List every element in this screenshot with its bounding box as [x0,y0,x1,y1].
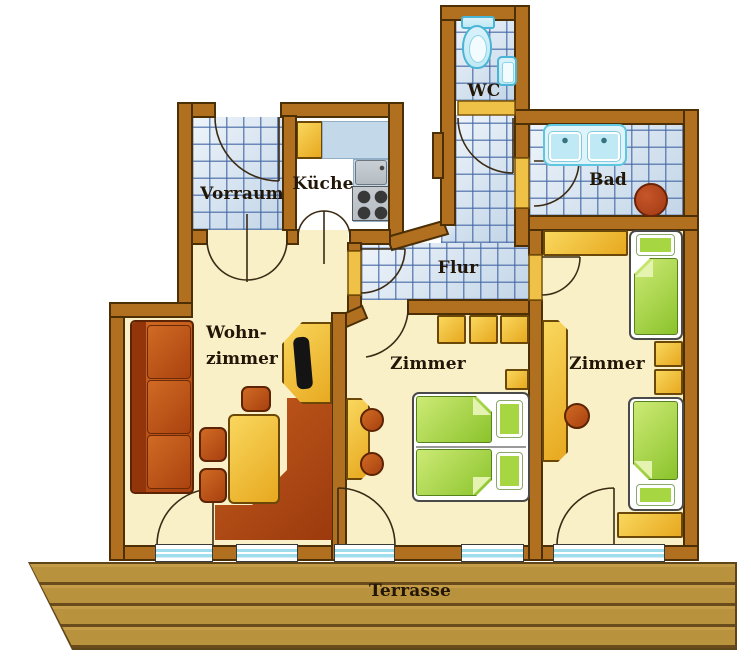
window [236,544,298,562]
room-label-wohnzimmer: Wohn- zimmer [206,320,278,372]
room-label-zimmer-mitte: Zimmer [390,354,466,374]
threshold-wc [458,101,515,115]
window [461,544,524,562]
window [334,544,395,562]
desk [542,320,568,462]
room-label-zimmer-rechts: Zimmer [569,354,645,374]
room-label-bad: Bad [589,170,627,190]
floor-plan: Vorraum Küche WC Bad Flur Wohn- zimmer Z… [0,0,751,660]
washbasin-left [549,132,581,161]
washbasin-right [588,132,620,161]
sofa-backrest [132,322,146,492]
wc-door [458,118,513,173]
toilet-bowl [469,35,487,63]
wardrobe [543,230,628,256]
zimmer-rechts-balcony-door [557,488,614,545]
room-label-kueche: Küche [292,174,353,194]
terrace-planks [30,564,735,648]
nightstand [505,369,529,390]
zimmer-rechts-door [542,257,580,295]
dining-chair-west-2 [199,468,227,503]
bed-mattress [416,449,492,496]
wardrobe-segment [469,315,498,344]
sofa-cushion [147,380,191,434]
dining-chair-north [241,386,271,412]
room-label-terrasse: Terrasse [369,581,451,601]
bed-mattress [633,401,678,480]
room-label-flur: Flur [438,258,479,278]
room-label-vorraum: Vorraum [200,184,284,204]
room-label-wohnzimmer-line1: Wohn- [206,320,278,346]
kueche-door [298,211,350,264]
bed-mattress [416,396,492,443]
pillow [497,453,522,489]
threshold-wohnzimmer [348,251,361,295]
wardrobe-segment [500,315,529,344]
pillow [637,235,674,255]
dining-table [228,414,280,504]
zimmer-mitte-door [366,304,408,357]
terrace [28,562,737,650]
room-label-wohnzimmer-line2: zimmer [206,346,278,372]
room-label-wc: WC [467,81,500,101]
bed-divider [416,446,526,448]
wardrobe-segment [437,315,466,344]
window [553,544,665,562]
wc-hand-basin-inner [502,62,514,83]
sofa-cushion [147,435,191,489]
bath-stool [634,183,668,217]
dining-chair-west-1 [199,427,227,462]
sofa [130,320,194,494]
toilet [462,25,492,69]
bad-door [534,161,579,206]
bath-double-washbasin [543,124,627,166]
dresser [617,512,683,538]
threshold-zimmer-rechts [529,255,542,300]
nightstand [654,369,683,395]
pillow [637,485,674,505]
wohnzimmer-flur-door [361,249,405,293]
desk-chair [564,403,590,429]
desk-chair [360,408,384,432]
pillow [497,401,522,437]
nightstand [654,341,683,367]
threshold-bad [515,158,529,208]
entrance-door [215,117,279,181]
vorraum-door [207,214,287,282]
window [155,544,213,562]
bed-mattress [634,258,678,335]
desk-chair [360,452,384,476]
sofa-cushion [147,325,191,379]
